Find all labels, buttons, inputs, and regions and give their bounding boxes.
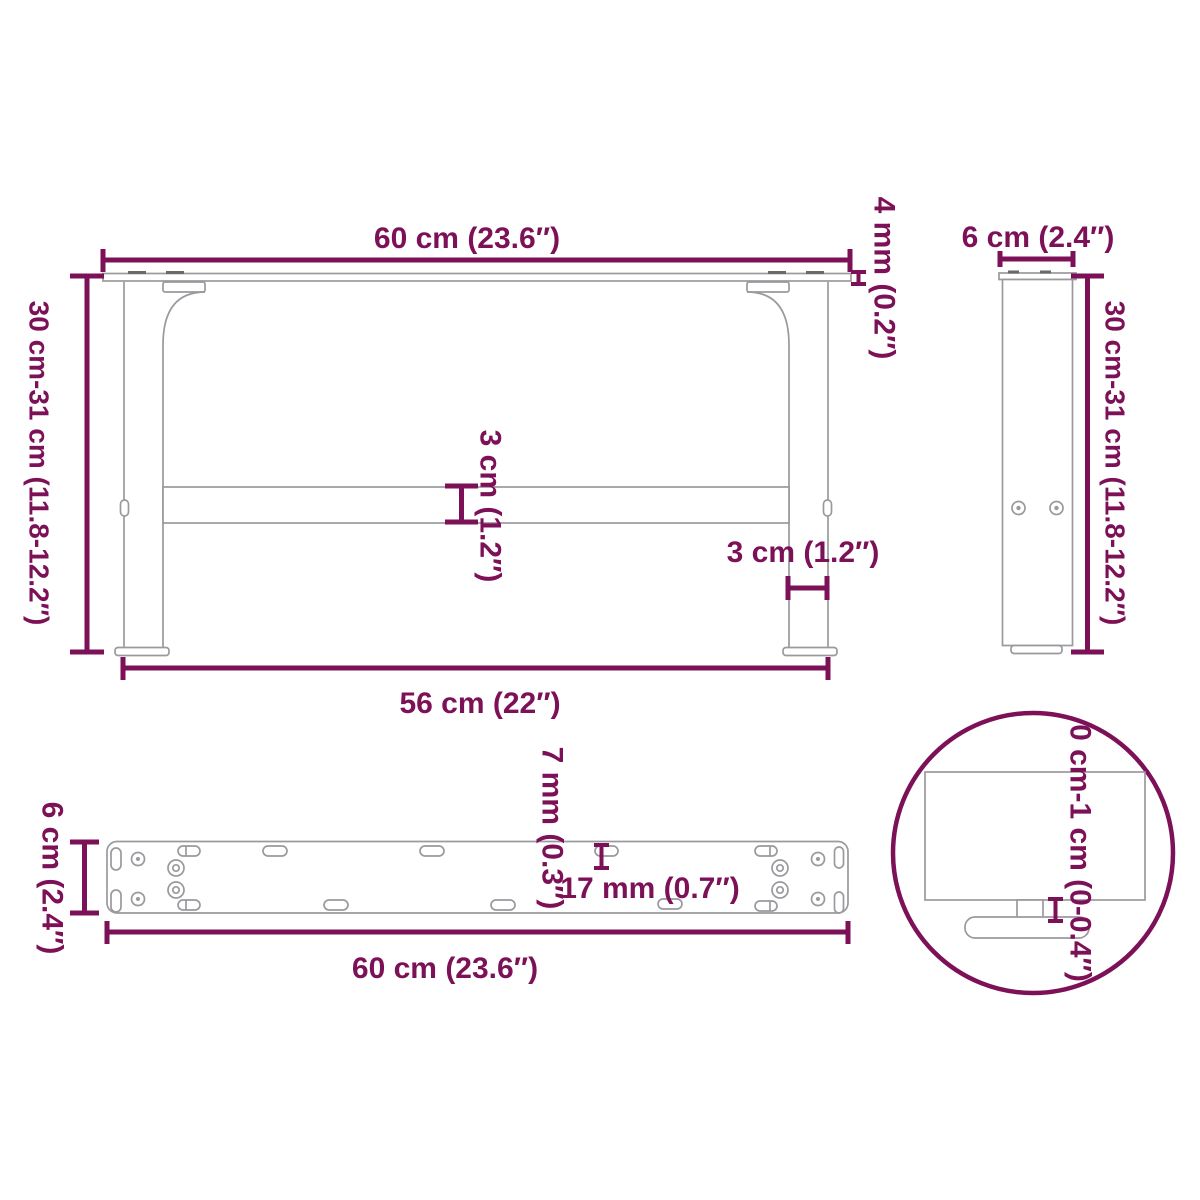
side-width-label: 6 cm (2.4″) [962, 221, 1115, 254]
plate-slot-length-label: 17 mm (0.7″) [560, 872, 739, 905]
side-screw-hole-left-center [1016, 506, 1020, 510]
plate-screw-hole-center [816, 857, 820, 861]
plate-screw-hole-center [136, 857, 140, 861]
side-view: 6 cm (2.4″) 30 cm-31 cm (11.8-12.2″) [962, 221, 1131, 654]
detail-foot-stem [1017, 900, 1043, 918]
front-bottom-width-label: 56 cm (22″) [399, 687, 560, 720]
detail-leg-bottom [925, 772, 1145, 900]
plate-screw-hole-center [136, 897, 140, 901]
front-left-bracket [163, 282, 205, 292]
plate-depth-label: 6 cm (2.4″) [36, 802, 69, 955]
front-height-label: 30 cm-31 cm (11.8-12.2″) [24, 301, 55, 626]
front-plate-thickness-dimension-line [851, 272, 866, 284]
side-foot [1011, 646, 1062, 654]
front-view: 60 cm (23.6″) 30 cm-31 cm (11.8-12.2″) 4… [24, 197, 901, 720]
side-leg-body [1003, 280, 1073, 646]
plate-width-dimension-line [107, 921, 848, 944]
diagram-page: 60 cm (23.6″) 30 cm-31 cm (11.8-12.2″) 4… [0, 0, 1200, 1200]
front-left-leg-inner-edge [163, 292, 205, 648]
front-top-bar [103, 274, 851, 282]
plate-screw-hole-center [816, 897, 820, 901]
front-leg-width-dimension-line [788, 576, 827, 600]
front-bottom-width-dimension-line [123, 657, 828, 680]
front-right-bracket [747, 282, 789, 292]
front-leg-width-label: 3 cm (1.2″) [727, 536, 880, 569]
side-top-plate [999, 273, 1076, 280]
side-height-dimension-line [1071, 276, 1104, 652]
front-right-foot [783, 648, 837, 656]
side-screw-hole-right-center [1054, 506, 1058, 510]
plate-view: 6 cm (2.4″) [36, 747, 849, 985]
front-top-width-label: 60 cm (23.6″) [374, 222, 560, 255]
front-right-leg-inner-edge [747, 292, 789, 648]
front-left-leg-notch [121, 500, 129, 516]
plate-width-label: 60 cm (23.6″) [352, 952, 538, 985]
dimension-diagram: 60 cm (23.6″) 30 cm-31 cm (11.8-12.2″) 4… [0, 0, 1200, 1200]
detail-adjust-label: 0 cm-1 cm (0-0.4″) [1064, 724, 1097, 982]
front-right-leg-notch [824, 500, 832, 516]
side-height-label: 30 cm-31 cm (11.8-12.2″) [1100, 301, 1131, 626]
front-left-foot [115, 648, 169, 656]
front-height-dimension-line [70, 276, 104, 652]
front-crossbar-label: 3 cm (1.2″) [474, 430, 507, 583]
detail-view: 0 cm-1 cm (0-0.4″) [893, 713, 1173, 993]
plate-depth-dimension-line [70, 842, 99, 913]
front-plate-thickness-label: 4 mm (0.2″) [868, 197, 901, 360]
